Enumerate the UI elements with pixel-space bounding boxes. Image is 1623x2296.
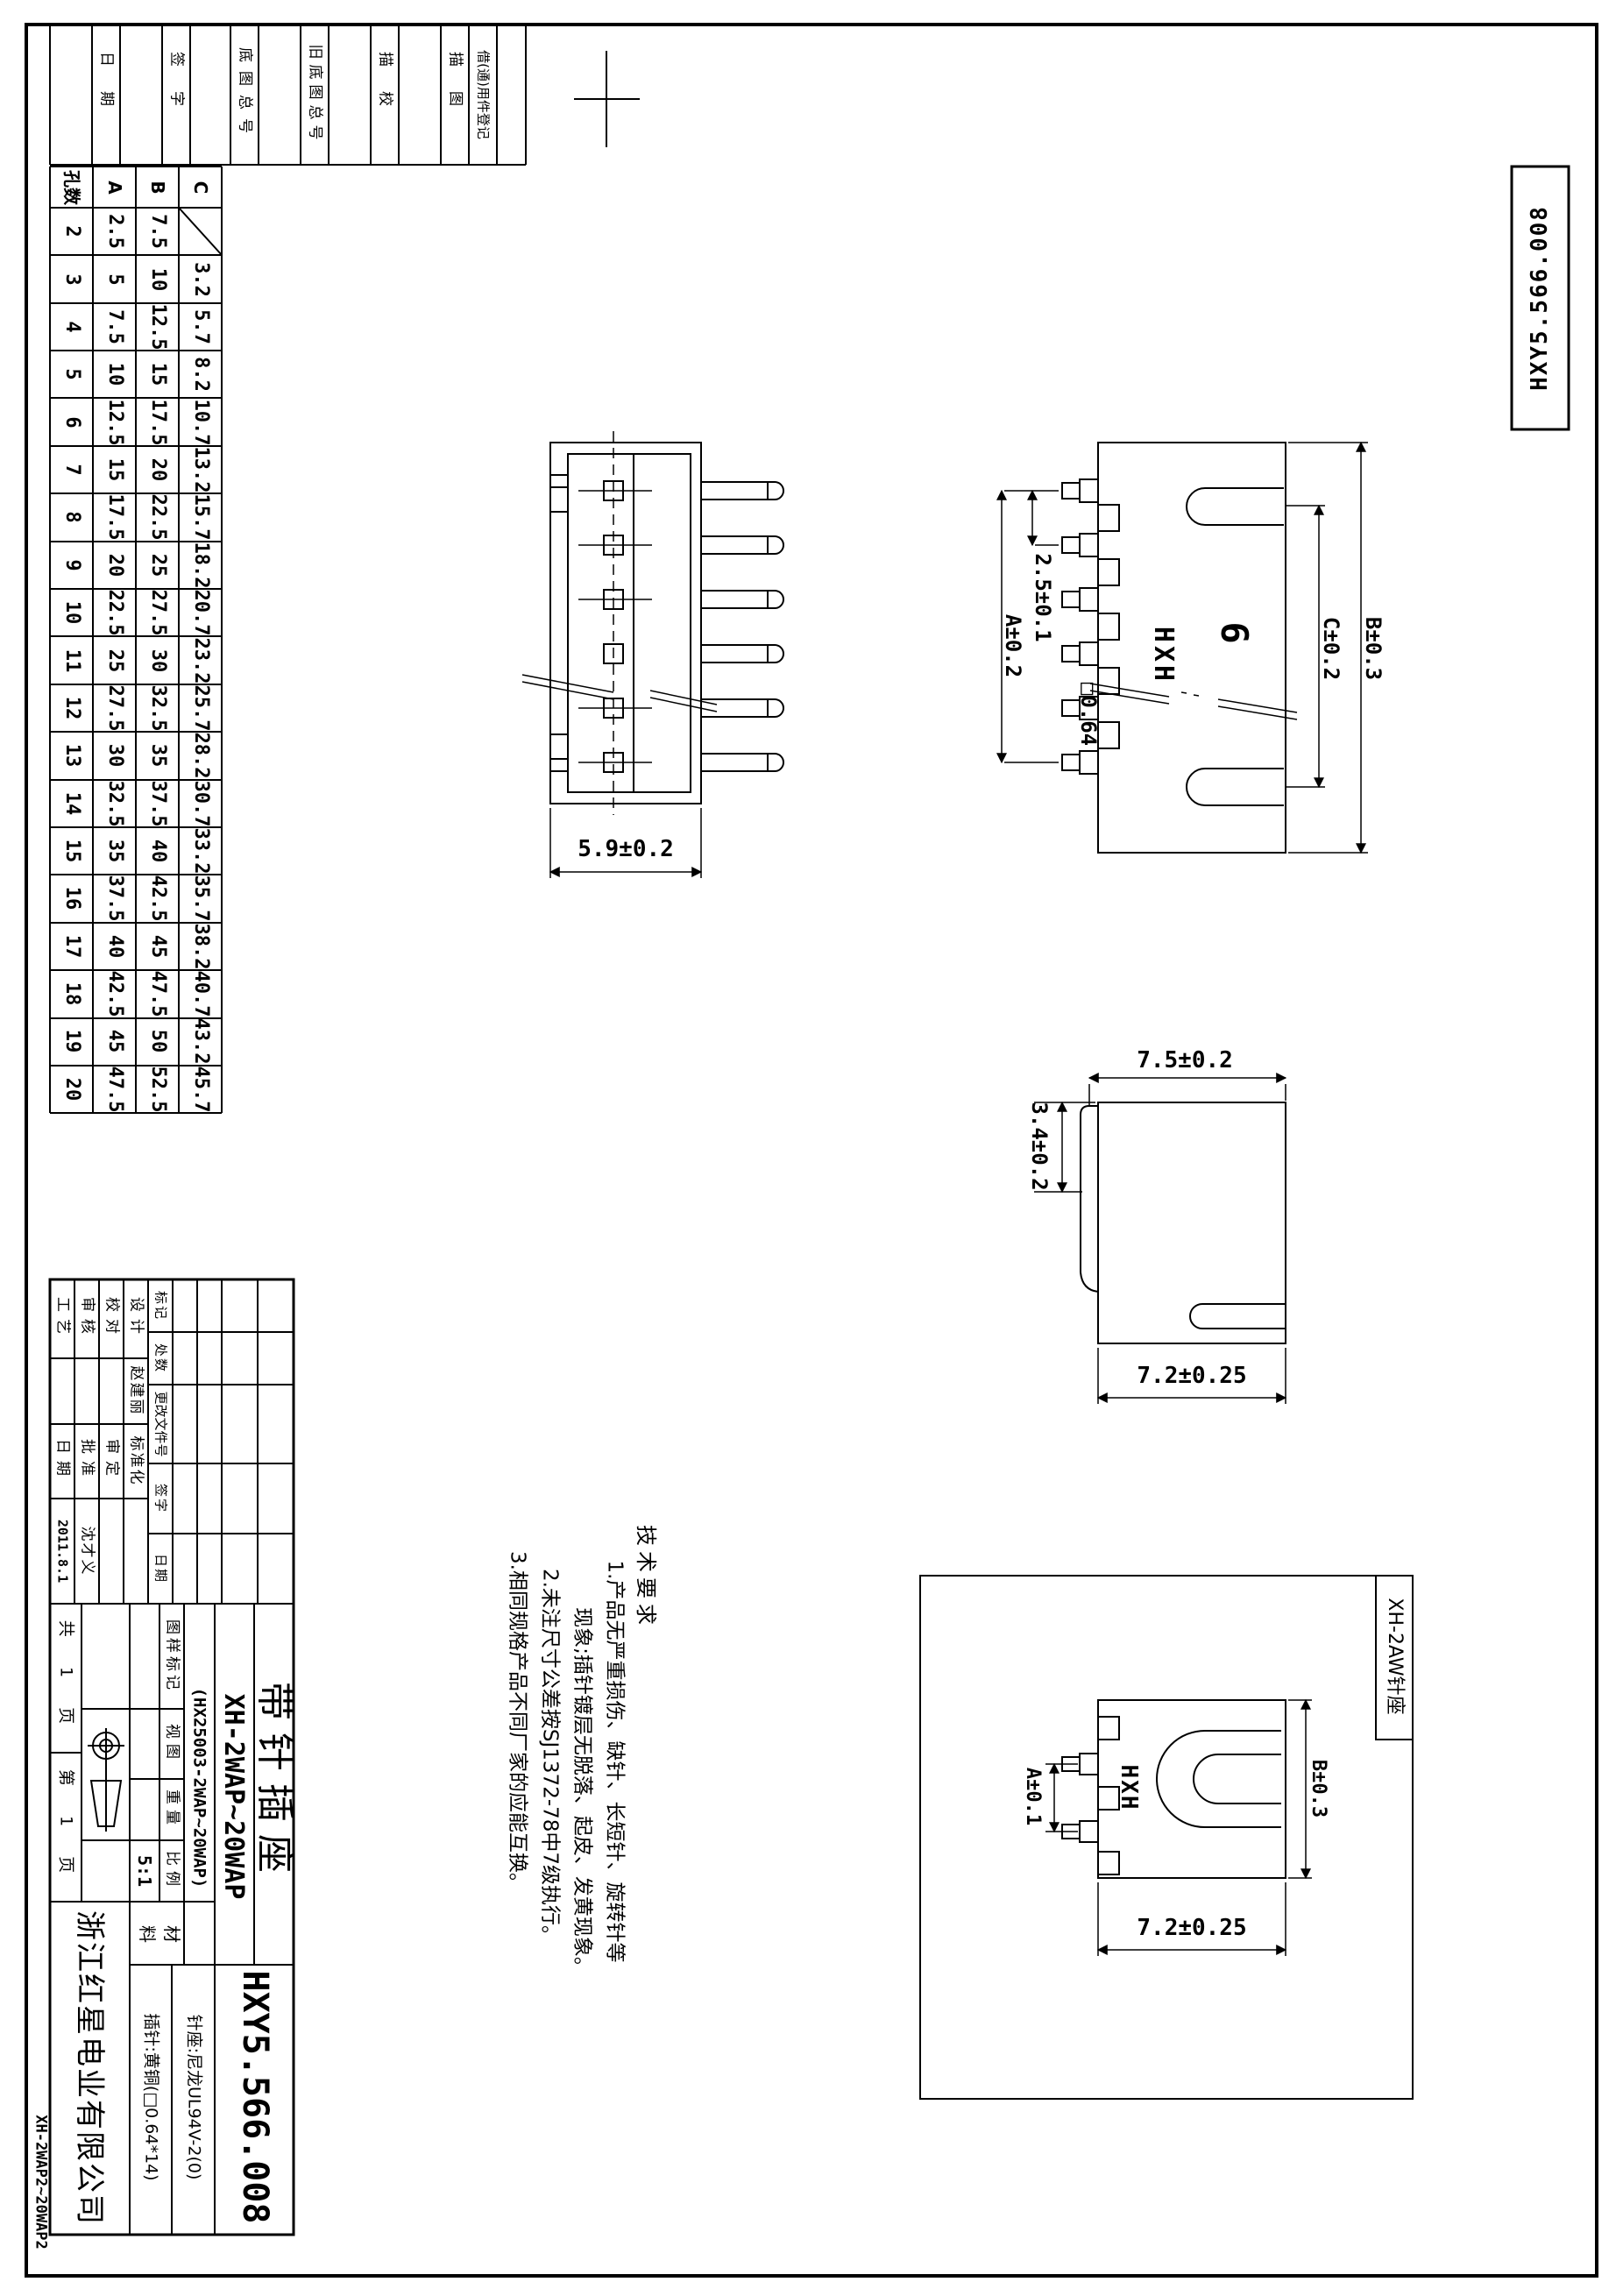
- rev-mark: 标记: [154, 1291, 167, 1321]
- table-cell: 11: [62, 648, 82, 672]
- latch-bottom: [1187, 769, 1284, 805]
- strip-borrow-register: 借(通)用件登记: [477, 50, 490, 139]
- table-cell: 20: [105, 554, 124, 578]
- break-lines: [1090, 684, 1297, 719]
- drawing-sheet: HXY5.566.008 日期 签字 底图总号 旧底图总号 描校 描图 借(通)…: [0, 0, 1623, 2296]
- table-cell: 2.5: [105, 214, 124, 249]
- table-cell: 32.5: [105, 780, 124, 826]
- tech-note-line: 2.未注尺寸公差按SJ1372-78中7级执行。: [540, 1569, 560, 1945]
- product-name: 带针插座: [255, 1682, 294, 1885]
- table-cell: 28.2: [191, 733, 210, 779]
- latch-top: [1187, 488, 1284, 525]
- table-cell: 35.7: [191, 875, 210, 922]
- table-header-cell: C: [192, 181, 209, 194]
- role-process: 工艺: [55, 1297, 70, 1341]
- dim-label: B±0.3: [1363, 617, 1384, 680]
- dim-label: □0.64: [1078, 683, 1099, 746]
- table-cell: 4: [62, 321, 82, 332]
- dim-label: B±0.3: [1308, 1760, 1328, 1818]
- table-diagonal-blank: [179, 208, 222, 255]
- profile-view: [1034, 1078, 1286, 1404]
- table-cell: 12.5: [105, 399, 124, 445]
- table-cell: 30.7: [191, 780, 210, 826]
- scale-value: 5:1: [136, 1855, 153, 1887]
- designer-name: 赵建丽: [129, 1366, 144, 1416]
- role-design: 设计: [129, 1297, 144, 1341]
- table-cell: 7.5: [105, 309, 124, 344]
- table-cell: 15.7: [191, 494, 210, 541]
- strip-signature: 签字: [169, 52, 184, 131]
- table-cell: 17: [62, 935, 82, 959]
- pin-count-mark: 6: [1215, 621, 1252, 643]
- table-cell: 33.2: [191, 828, 210, 875]
- table-cell: 18.2: [191, 542, 210, 588]
- table-cell: 20: [62, 1078, 82, 1102]
- table-cell: 27.5: [148, 590, 167, 636]
- tech-notes-title: 技术要求: [635, 1525, 656, 1630]
- table-cell: 15: [148, 363, 167, 386]
- table-cell: 47.5: [105, 1066, 124, 1112]
- approver-name: 沈才义: [80, 1527, 95, 1577]
- table-cell: 52.5: [148, 1066, 167, 1112]
- table-cell: 40: [148, 840, 167, 863]
- table-cell: 40: [105, 935, 124, 959]
- table-cell: 2: [62, 226, 82, 237]
- table-cell: 45.7: [191, 1066, 210, 1112]
- dim-label: 5.9±0.2: [578, 838, 674, 861]
- product-model-paren: (HX25003-2WAP~20WAP): [191, 1688, 208, 1889]
- table-cell: 27.5: [105, 684, 124, 731]
- table-cell: 10: [148, 267, 167, 291]
- table-cell: 23.2: [191, 637, 210, 684]
- detail-view-label: XH-2AW针座: [1385, 1598, 1404, 1714]
- company-name: 浙江红星电业有限公司: [74, 1910, 104, 2226]
- dim-label: 7.2±0.25: [1137, 1364, 1246, 1387]
- rev-count: 处数: [154, 1343, 167, 1373]
- material-line-2: 插针:黄铜(□0.64*14): [143, 2013, 159, 2180]
- table-cell: 25: [148, 554, 167, 578]
- centering-mark-icon: [574, 51, 640, 147]
- table-cell: 20: [148, 458, 167, 482]
- strip-old-base-sheet-no: 旧底图总号: [308, 45, 322, 145]
- table-cell: 45: [148, 935, 167, 959]
- table-cell: 47.5: [148, 971, 167, 1017]
- table-cell: 35: [148, 744, 167, 768]
- table-cell: 20.7: [191, 590, 210, 636]
- tech-note-line: 现象;插针镀层无脱落、起皮、发黄现象。: [572, 1607, 592, 1977]
- label-approve: 批准: [80, 1439, 95, 1483]
- table-cell: 10: [105, 363, 124, 386]
- table-cell: 16: [62, 887, 82, 911]
- table-cell: 30: [105, 744, 124, 768]
- table-cell: 25.7: [191, 684, 210, 731]
- table-cell: 37.5: [148, 780, 167, 826]
- dim-label: 7.2±0.25: [1137, 1917, 1246, 1939]
- label-weight: 重量: [165, 1789, 180, 1830]
- table-cell: 17.5: [105, 494, 124, 541]
- table-cell: 43.2: [191, 1018, 210, 1065]
- dim-label: A±0.2: [1003, 614, 1024, 677]
- material-label-1: 材: [163, 1925, 181, 1943]
- dim-label: 2.5±0.1: [1032, 553, 1053, 641]
- rev-signature: 签字: [154, 1484, 167, 1513]
- strip-date: 日期: [99, 52, 114, 131]
- front-view: [1002, 443, 1368, 853]
- table-cell: 35: [105, 840, 124, 863]
- projection-symbol-icon: [88, 1728, 124, 1832]
- table-cell: 7.5: [148, 214, 167, 249]
- table-cell: 13: [62, 744, 82, 768]
- dim-label: A±0.1: [1023, 1768, 1042, 1825]
- side-code: XH-2WAP2~20WAP2: [33, 2115, 48, 2250]
- table-cell: 40.7: [191, 971, 210, 1017]
- date-value: 2011.8.1: [56, 1520, 69, 1583]
- table-cell: 6: [62, 416, 82, 428]
- tech-note-line: 1.产品无严重损伤、缺针、长短针、旋转针等: [605, 1561, 625, 1963]
- label-date: 日期: [55, 1439, 70, 1483]
- latch: [1157, 1731, 1281, 1827]
- table-cell: 17.5: [148, 399, 167, 445]
- table-cell: 42.5: [148, 875, 167, 922]
- table-cell: 8: [62, 512, 82, 523]
- rev-change-doc-no: 更改文件号: [154, 1391, 167, 1456]
- strip-trace-check: 描校: [378, 52, 393, 131]
- table-cell: 13.2: [191, 447, 210, 493]
- table-header-cell: B: [149, 181, 167, 194]
- brand-mark: HXH: [1117, 1765, 1140, 1811]
- brand-mark: HXH: [1150, 627, 1176, 684]
- table-cell: 5: [105, 273, 124, 285]
- table-header-cell: A: [106, 181, 124, 194]
- table-cell: 12.5: [148, 303, 167, 350]
- table-cell: 25: [105, 648, 124, 672]
- product-model: XH-2WAP~20WAP: [220, 1694, 246, 1900]
- table-cell: 7: [62, 464, 82, 475]
- table-cell: 45: [105, 1030, 124, 1053]
- label-standardization: 标准化: [129, 1436, 144, 1486]
- sheet-border: [26, 25, 1597, 2276]
- table-cell: 50: [148, 1030, 167, 1053]
- rev-date: 日期: [154, 1554, 167, 1584]
- corner-drawing-number: HXY5.566.008: [1528, 205, 1551, 391]
- table-cell: 22.5: [148, 494, 167, 541]
- material-line-1: 针座:尼龙UL94V-2(0): [186, 2015, 202, 2180]
- table-cell: 5.7: [191, 309, 210, 344]
- dim-label: 3.4±0.2: [1029, 1102, 1050, 1190]
- table-cell: 3: [62, 273, 82, 285]
- tech-note-line: 3.相同规格产品不同厂家的应能互换。: [507, 1551, 528, 1893]
- strip-base-sheet-no: 底图总号: [237, 47, 252, 142]
- label-pattern-mark: 图样标记: [165, 1619, 180, 1693]
- pages-total: 共 1 页: [58, 1620, 74, 1736]
- label-examine: 审定: [104, 1439, 119, 1483]
- table-cell: 18: [62, 982, 82, 1006]
- role-proofread: 校对: [104, 1297, 119, 1341]
- table-cell: 5: [62, 369, 82, 380]
- label-view: 视图: [165, 1724, 180, 1764]
- table-cell: 38.2: [191, 923, 210, 969]
- table-cell: 22.5: [105, 590, 124, 636]
- drawing-number: HXY5.566.008: [237, 1971, 273, 2224]
- table-header-cell: 孔数: [63, 170, 81, 205]
- table-cell: 12: [62, 697, 82, 720]
- side-view: [522, 431, 783, 878]
- dim-label: C±0.2: [1321, 617, 1342, 680]
- table-cell: 3.2: [191, 262, 210, 297]
- table-cell: 10.7: [191, 399, 210, 445]
- label-scale: 比例: [165, 1851, 180, 1891]
- table-cell: 37.5: [105, 875, 124, 922]
- material-label-2: 料: [138, 1925, 156, 1943]
- table-cell: 9: [62, 559, 82, 570]
- strip-trace-draw: 描图: [448, 52, 463, 131]
- table-cell: 42.5: [105, 971, 124, 1017]
- table-cell: 14: [62, 791, 82, 815]
- role-review: 审核: [80, 1297, 95, 1341]
- table-cell: 15: [105, 458, 124, 482]
- pages-current: 第 1 页: [58, 1769, 74, 1885]
- dim-label: 7.5±0.2: [1137, 1049, 1233, 1072]
- drawing-linework: [0, 0, 1623, 2296]
- break-lines: [522, 675, 717, 712]
- table-cell: 30: [148, 648, 167, 672]
- table-cell: 19: [62, 1030, 82, 1053]
- table-cell: 32.5: [148, 684, 167, 731]
- table-cell: 15: [62, 840, 82, 863]
- table-cell: 10: [62, 601, 82, 625]
- table-cell: 8.2: [191, 357, 210, 392]
- detail-view: [920, 1576, 1413, 2099]
